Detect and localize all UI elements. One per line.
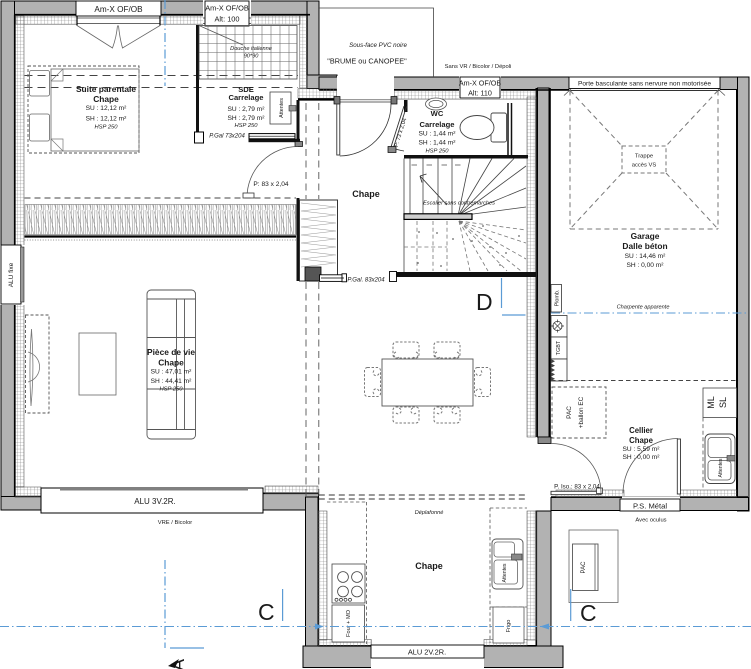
svg-text:SU : 1,44 m²: SU : 1,44 m² — [418, 131, 456, 138]
svg-text:D: D — [476, 289, 493, 315]
svg-text:90*90: 90*90 — [244, 54, 260, 60]
svg-text:Trappe: Trappe — [635, 154, 653, 160]
svg-text:accès VS: accès VS — [632, 163, 657, 169]
svg-text:P.Gal. 83x204: P.Gal. 83x204 — [347, 278, 385, 284]
svg-text:Four + MO: Four + MO — [346, 609, 352, 637]
svg-text:HSP 250: HSP 250 — [95, 125, 119, 131]
svg-text:Pièce de vie: Pièce de vie — [147, 347, 195, 357]
svg-text:Am-X OF/OB: Am-X OF/OB — [459, 79, 502, 88]
svg-text:Alt: 100: Alt: 100 — [214, 15, 239, 24]
svg-text:HSP 250: HSP 250 — [160, 387, 184, 393]
svg-text:TGBT: TGBT — [556, 340, 562, 355]
svg-text:ALU 2V.2R.: ALU 2V.2R. — [408, 648, 446, 657]
svg-text:SU : 2,79 m²: SU : 2,79 m² — [227, 106, 265, 113]
svg-text:P.S. Métal: P.S. Métal — [633, 502, 667, 511]
svg-text:Chape: Chape — [415, 561, 443, 571]
svg-text:Sans VR / Bicolor / Dépoli: Sans VR / Bicolor / Dépoli — [445, 64, 512, 70]
svg-text:SU : 12,12 m²: SU : 12,12 m² — [86, 105, 127, 112]
svg-text:PAC: PAC — [581, 561, 587, 574]
svg-text:WC: WC — [431, 109, 444, 118]
svg-text:Attentes: Attentes — [718, 458, 724, 477]
svg-text:Chape: Chape — [352, 189, 380, 199]
svg-text:P. Iso.: 83 x 2,04: P. Iso.: 83 x 2,04 — [554, 484, 600, 491]
svg-text:+ballon EC: +ballon EC — [578, 396, 585, 428]
svg-text:Am-X OF/OB: Am-X OF/OB — [205, 4, 249, 13]
svg-text:Porte basculante sans nervure: Porte basculante sans nervure non motori… — [578, 81, 711, 88]
svg-text:SH : 12,12 m²: SH : 12,12 m² — [86, 116, 127, 123]
svg-text:Déplafonné: Déplafonné — [415, 510, 444, 516]
svg-text:Am-X OF/OB: Am-X OF/OB — [94, 5, 143, 14]
svg-text:SH : 1,44 m²: SH : 1,44 m² — [418, 140, 456, 147]
svg-text:ALU 3V.2R.: ALU 3V.2R. — [134, 497, 176, 506]
svg-text:PAC: PAC — [566, 406, 573, 419]
svg-text:SU : 5,59 m²: SU : 5,59 m² — [622, 446, 660, 453]
svg-text:Chape: Chape — [158, 358, 184, 368]
svg-text:Charpente apparente: Charpente apparente — [617, 305, 670, 311]
svg-text:P: 83 x 2,04: P: 83 x 2,04 — [253, 181, 289, 188]
svg-text:Carrelage: Carrelage — [228, 93, 263, 102]
svg-text:P.Gal 73x204: P.Gal 73x204 — [209, 134, 245, 140]
svg-text:SH : 44,41 m²: SH : 44,41 m² — [151, 378, 192, 385]
svg-text:Garage: Garage — [631, 231, 660, 241]
svg-text:Douche italienne: Douche italienne — [230, 46, 272, 52]
svg-text:Frigo: Frigo — [506, 620, 512, 633]
svg-text:"BRUME ou CANOPEE": "BRUME ou CANOPEE" — [327, 57, 407, 66]
svg-text:Carrelage: Carrelage — [419, 120, 454, 129]
svg-text:SU : 47,01 m²: SU : 47,01 m² — [151, 369, 192, 376]
svg-text:Avec oculus: Avec oculus — [635, 518, 666, 524]
svg-text:C: C — [258, 599, 275, 625]
svg-text:Dalle béton: Dalle béton — [622, 241, 667, 251]
svg-text:Sous-face PVC noire: Sous-face PVC noire — [349, 42, 407, 49]
svg-text:SH : 0,00 m²: SH : 0,00 m² — [622, 454, 660, 461]
svg-text:ML: ML — [706, 396, 716, 409]
svg-text:C: C — [580, 600, 597, 626]
svg-text:Attentes: Attentes — [502, 563, 508, 582]
svg-text:SH : 2,79 m²: SH : 2,79 m² — [227, 115, 265, 122]
svg-text:Chape: Chape — [93, 94, 119, 104]
svg-text:Chape: Chape — [629, 436, 653, 445]
svg-text:Attentes: Attentes — [279, 98, 285, 118]
svg-text:HSP 250: HSP 250 — [426, 149, 450, 155]
svg-text:Cellier: Cellier — [629, 426, 653, 435]
svg-text:Escalier sans contremarches: Escalier sans contremarches — [423, 201, 495, 207]
svg-text:Plomb.: Plomb. — [555, 290, 561, 307]
svg-text:HSP 250: HSP 250 — [235, 123, 259, 129]
svg-text:VRE / Bicolor: VRE / Bicolor — [158, 520, 193, 526]
svg-text:SU : 14,46 m²: SU : 14,46 m² — [625, 253, 666, 260]
svg-text:SH : 0,00 m²: SH : 0,00 m² — [626, 262, 664, 269]
svg-text:SL: SL — [718, 397, 728, 408]
svg-text:Suite parentale: Suite parentale — [76, 84, 136, 94]
svg-text:Alt: 110: Alt: 110 — [468, 89, 492, 98]
svg-text:ALU fixe: ALU fixe — [8, 262, 15, 287]
